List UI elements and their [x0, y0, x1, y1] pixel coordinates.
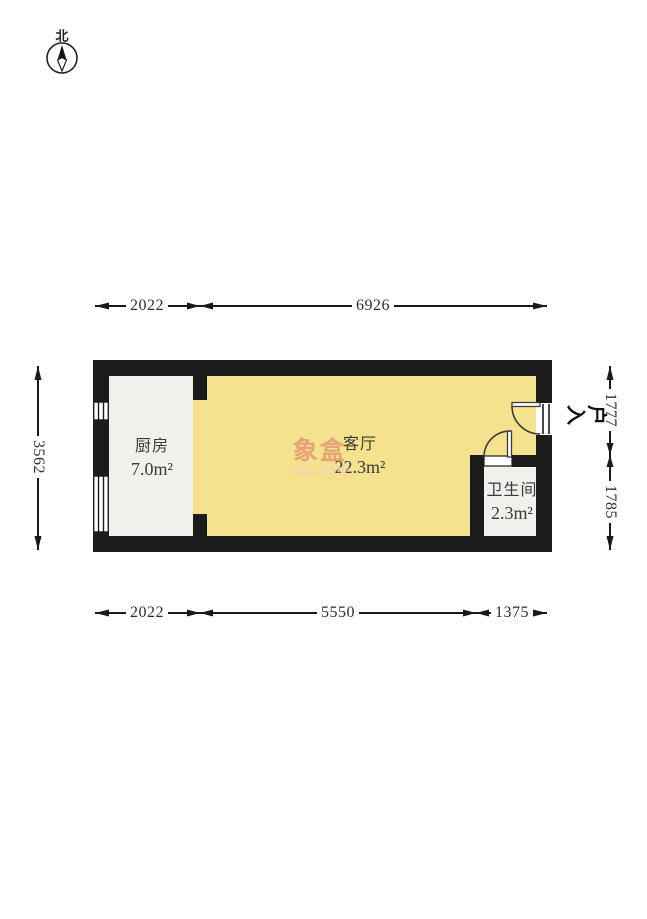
left-wall-seg3	[93, 532, 109, 552]
dim-arrow	[607, 455, 614, 467]
bathroom-top-wall-left	[470, 455, 484, 467]
bathroom-door-leaf	[508, 431, 512, 457]
room-label-bathroom: 卫生间 2.3m²	[486, 481, 537, 525]
window-left-upper	[94, 402, 109, 420]
left-wall-seg1	[93, 360, 109, 402]
dim-arrow	[95, 303, 109, 310]
dim-arrow	[476, 610, 489, 617]
dim-arrow	[463, 610, 476, 617]
bathroom-top-wall-right	[512, 455, 552, 467]
bottom-wall	[93, 536, 552, 552]
entry-label-char: 户	[585, 405, 607, 425]
right-wall-lower	[536, 435, 552, 552]
floor-plan-page: 北 2022 6926 2022 5550 1375 3562 1777 178…	[0, 0, 647, 919]
entry-label: 入 户	[565, 404, 606, 426]
top-wall	[93, 360, 552, 376]
dim-arrow	[533, 303, 547, 310]
compass-north-label: 北	[55, 26, 68, 45]
dim-label-bottom-5550: 5550	[317, 604, 359, 622]
dim-label-top-6926: 6926	[352, 297, 394, 315]
dim-arrow	[200, 610, 213, 617]
dim-arrow	[200, 303, 213, 310]
dim-arrow	[187, 610, 200, 617]
dim-arrow	[607, 366, 614, 380]
left-wall-seg2	[93, 420, 109, 476]
compass	[47, 43, 77, 73]
dim-label-bottom-2022: 2022	[126, 604, 168, 622]
room-area: 2.3m²	[486, 502, 537, 525]
dim-label-right-1785: 1785	[601, 481, 619, 523]
dim-arrow	[187, 303, 200, 310]
room-area: 7.0m²	[131, 458, 173, 481]
dim-arrow	[35, 366, 42, 380]
bathroom-left-wall	[470, 455, 484, 536]
floor-plan-drawing	[0, 0, 647, 919]
room-name: 卫生间	[486, 481, 537, 502]
room-name: 厨房	[131, 437, 173, 458]
kitchen-divider-stub-bottom	[193, 514, 207, 536]
kitchen-divider-stub-top	[193, 376, 207, 400]
entry-door-leaf	[512, 403, 540, 407]
dim-arrow	[607, 443, 614, 455]
room-name: 客厅	[335, 435, 386, 456]
window-left-lower	[94, 476, 109, 532]
dim-label-bottom-1375: 1375	[491, 604, 533, 622]
dim-arrow	[533, 610, 547, 617]
room-area: 22.3m²	[335, 456, 386, 479]
dim-label-top-2022: 2022	[126, 297, 168, 315]
dim-arrow	[95, 610, 109, 617]
dim-arrow	[35, 536, 42, 550]
right-wall-upper	[536, 360, 552, 403]
dim-arrow	[607, 536, 614, 550]
entry-label-char: 入	[564, 405, 586, 425]
dim-label-left-3562: 3562	[29, 436, 47, 478]
room-label-living-room: 客厅 22.3m²	[335, 435, 386, 479]
room-label-kitchen: 厨房 7.0m²	[131, 437, 173, 481]
